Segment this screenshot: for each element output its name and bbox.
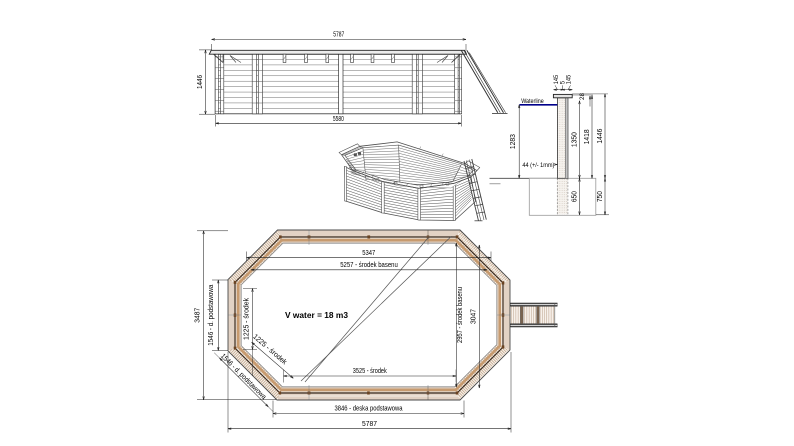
svg-text:5787: 5787 [362, 419, 377, 428]
svg-text:44 (+/- 1mm): 44 (+/- 1mm) [522, 162, 554, 169]
svg-text:650: 650 [570, 191, 579, 202]
svg-text:750: 750 [595, 191, 604, 202]
svg-text:1350: 1350 [570, 132, 579, 147]
svg-text:V water = 18 m3: V water = 18 m3 [285, 310, 348, 320]
svg-text:1225 - środek: 1225 - środek [242, 298, 251, 340]
svg-text:3047: 3047 [468, 309, 477, 324]
svg-text:1446: 1446 [595, 129, 604, 144]
svg-text:3525 - środek: 3525 - środek [353, 366, 387, 375]
svg-text:1418: 1418 [582, 129, 591, 144]
svg-text:3487: 3487 [193, 308, 202, 323]
svg-text:1546 - d. podstawowa: 1546 - d. podstawowa [206, 285, 215, 346]
svg-text:5580: 5580 [333, 114, 344, 123]
svg-text:5257 - środek basenu: 5257 - środek basenu [340, 260, 398, 269]
svg-text:28: 28 [579, 92, 586, 100]
svg-text:1283: 1283 [508, 134, 517, 149]
svg-text:3846 - deska podstawowa: 3846 - deska podstawowa [335, 404, 403, 413]
svg-text:1446: 1446 [195, 75, 204, 89]
svg-text:5347: 5347 [362, 248, 375, 257]
svg-text:145: 145 [565, 74, 572, 84]
svg-text:2957 - środek basenu: 2957 - środek basenu [455, 287, 464, 343]
svg-text:Waterline: Waterline [521, 98, 544, 105]
svg-text:5787: 5787 [333, 29, 344, 38]
